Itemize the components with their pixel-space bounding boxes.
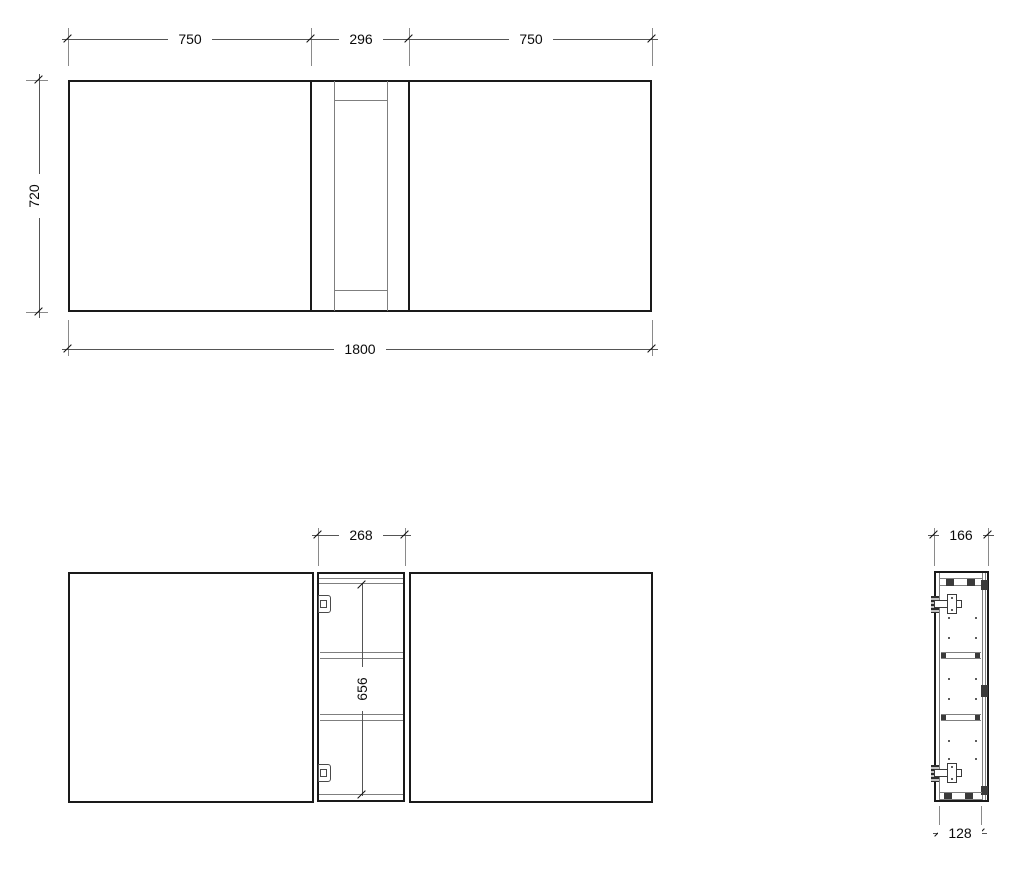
shelf-pin-hole: [975, 758, 977, 760]
shelf-pin-hole: [948, 758, 950, 760]
frame-inner-edge: [334, 81, 335, 311]
middle-unit-top-edge: [317, 572, 405, 574]
shelf-pin-hole: [948, 740, 950, 742]
wall-bracket: [981, 580, 988, 590]
cam-fitting: [944, 793, 952, 799]
dim-label-opening-width: 268: [339, 527, 383, 543]
shelf-support: [941, 715, 946, 720]
shelf-line: [941, 720, 981, 721]
shelf-pin-hole: [975, 698, 977, 700]
shelf-pin-hole: [948, 617, 950, 619]
drawing-canvas: 750 296 750 720 1800: [0, 0, 1024, 874]
left-door-outline: [68, 572, 314, 803]
shelf-support: [975, 715, 980, 720]
wall-bracket: [981, 685, 988, 697]
dim-label-total-width: 1800: [334, 341, 386, 357]
dim-label-depth-total: 166: [939, 527, 983, 543]
shelf-pin-hole: [975, 740, 977, 742]
wall-bracket: [981, 786, 988, 795]
dim-label-middle-width: 296: [339, 31, 383, 47]
shelf-pin-hole: [975, 637, 977, 639]
extension-line: [652, 320, 653, 356]
shelf-pin-hole: [948, 698, 950, 700]
top-panel-inner-edge: [319, 578, 403, 579]
extension-line: [68, 320, 69, 356]
bottom-panel-line: [940, 799, 982, 800]
extension-line: [409, 28, 410, 66]
dim-label-depth-body: 128: [938, 825, 982, 841]
dim-label-left-door-width: 750: [168, 31, 212, 47]
cam-fitting: [946, 579, 954, 586]
middle-unit-side-wall: [403, 572, 405, 802]
cam-fitting: [967, 579, 975, 586]
shelf-line: [941, 658, 981, 659]
right-door-outline: [409, 572, 653, 803]
frame-inner-edge: [387, 81, 388, 311]
shelf-pin-hole: [975, 617, 977, 619]
dim-label-height: 720: [26, 174, 42, 218]
shelf-pin-hole: [948, 678, 950, 680]
cabinet-outline: [68, 80, 652, 312]
cam-fitting: [965, 793, 973, 799]
extension-line: [68, 28, 69, 66]
frame-inner-edge: [335, 100, 387, 101]
middle-unit-bottom-edge: [317, 800, 405, 802]
shelf-pin-hole: [975, 678, 977, 680]
frame-inner-edge: [335, 290, 387, 291]
shelf-support: [975, 653, 980, 658]
shelf-support: [941, 653, 946, 658]
panel-edge: [408, 80, 410, 312]
shelf-pin-hole: [948, 637, 950, 639]
dim-label-right-door-width: 750: [509, 31, 553, 47]
extension-line: [652, 28, 653, 66]
extension-line: [311, 28, 312, 66]
dim-label-opening-height: 656: [354, 667, 370, 711]
panel-edge: [310, 80, 312, 312]
